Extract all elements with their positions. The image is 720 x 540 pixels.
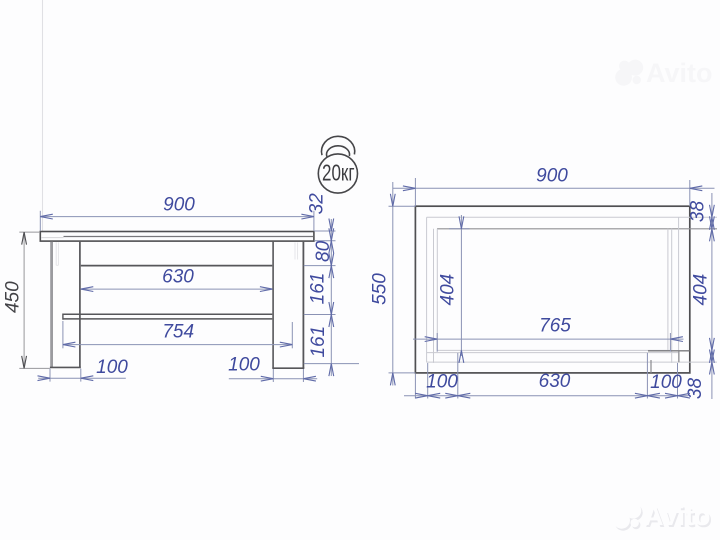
svg-text:550: 550 (369, 273, 390, 305)
svg-text:Avito: Avito (644, 501, 711, 531)
svg-text:20кг: 20кг (322, 161, 355, 186)
svg-text:161: 161 (307, 273, 328, 305)
svg-text:450: 450 (3, 281, 24, 313)
svg-text:80: 80 (313, 240, 334, 262)
svg-text:100: 100 (650, 372, 682, 393)
svg-text:900: 900 (536, 165, 568, 186)
svg-text:404: 404 (691, 274, 712, 306)
svg-text:765: 765 (539, 315, 571, 336)
svg-text:900: 900 (163, 194, 195, 215)
svg-text:100: 100 (228, 355, 260, 376)
svg-text:630: 630 (539, 371, 571, 392)
svg-text:404: 404 (437, 274, 458, 306)
svg-text:100: 100 (96, 357, 128, 378)
svg-text:Avito: Avito (646, 58, 713, 88)
svg-text:38: 38 (687, 201, 708, 223)
svg-text:754: 754 (162, 322, 194, 343)
svg-text:630: 630 (162, 267, 194, 288)
svg-text:32: 32 (307, 193, 328, 215)
svg-text:100: 100 (426, 371, 458, 392)
svg-text:161: 161 (308, 326, 329, 358)
